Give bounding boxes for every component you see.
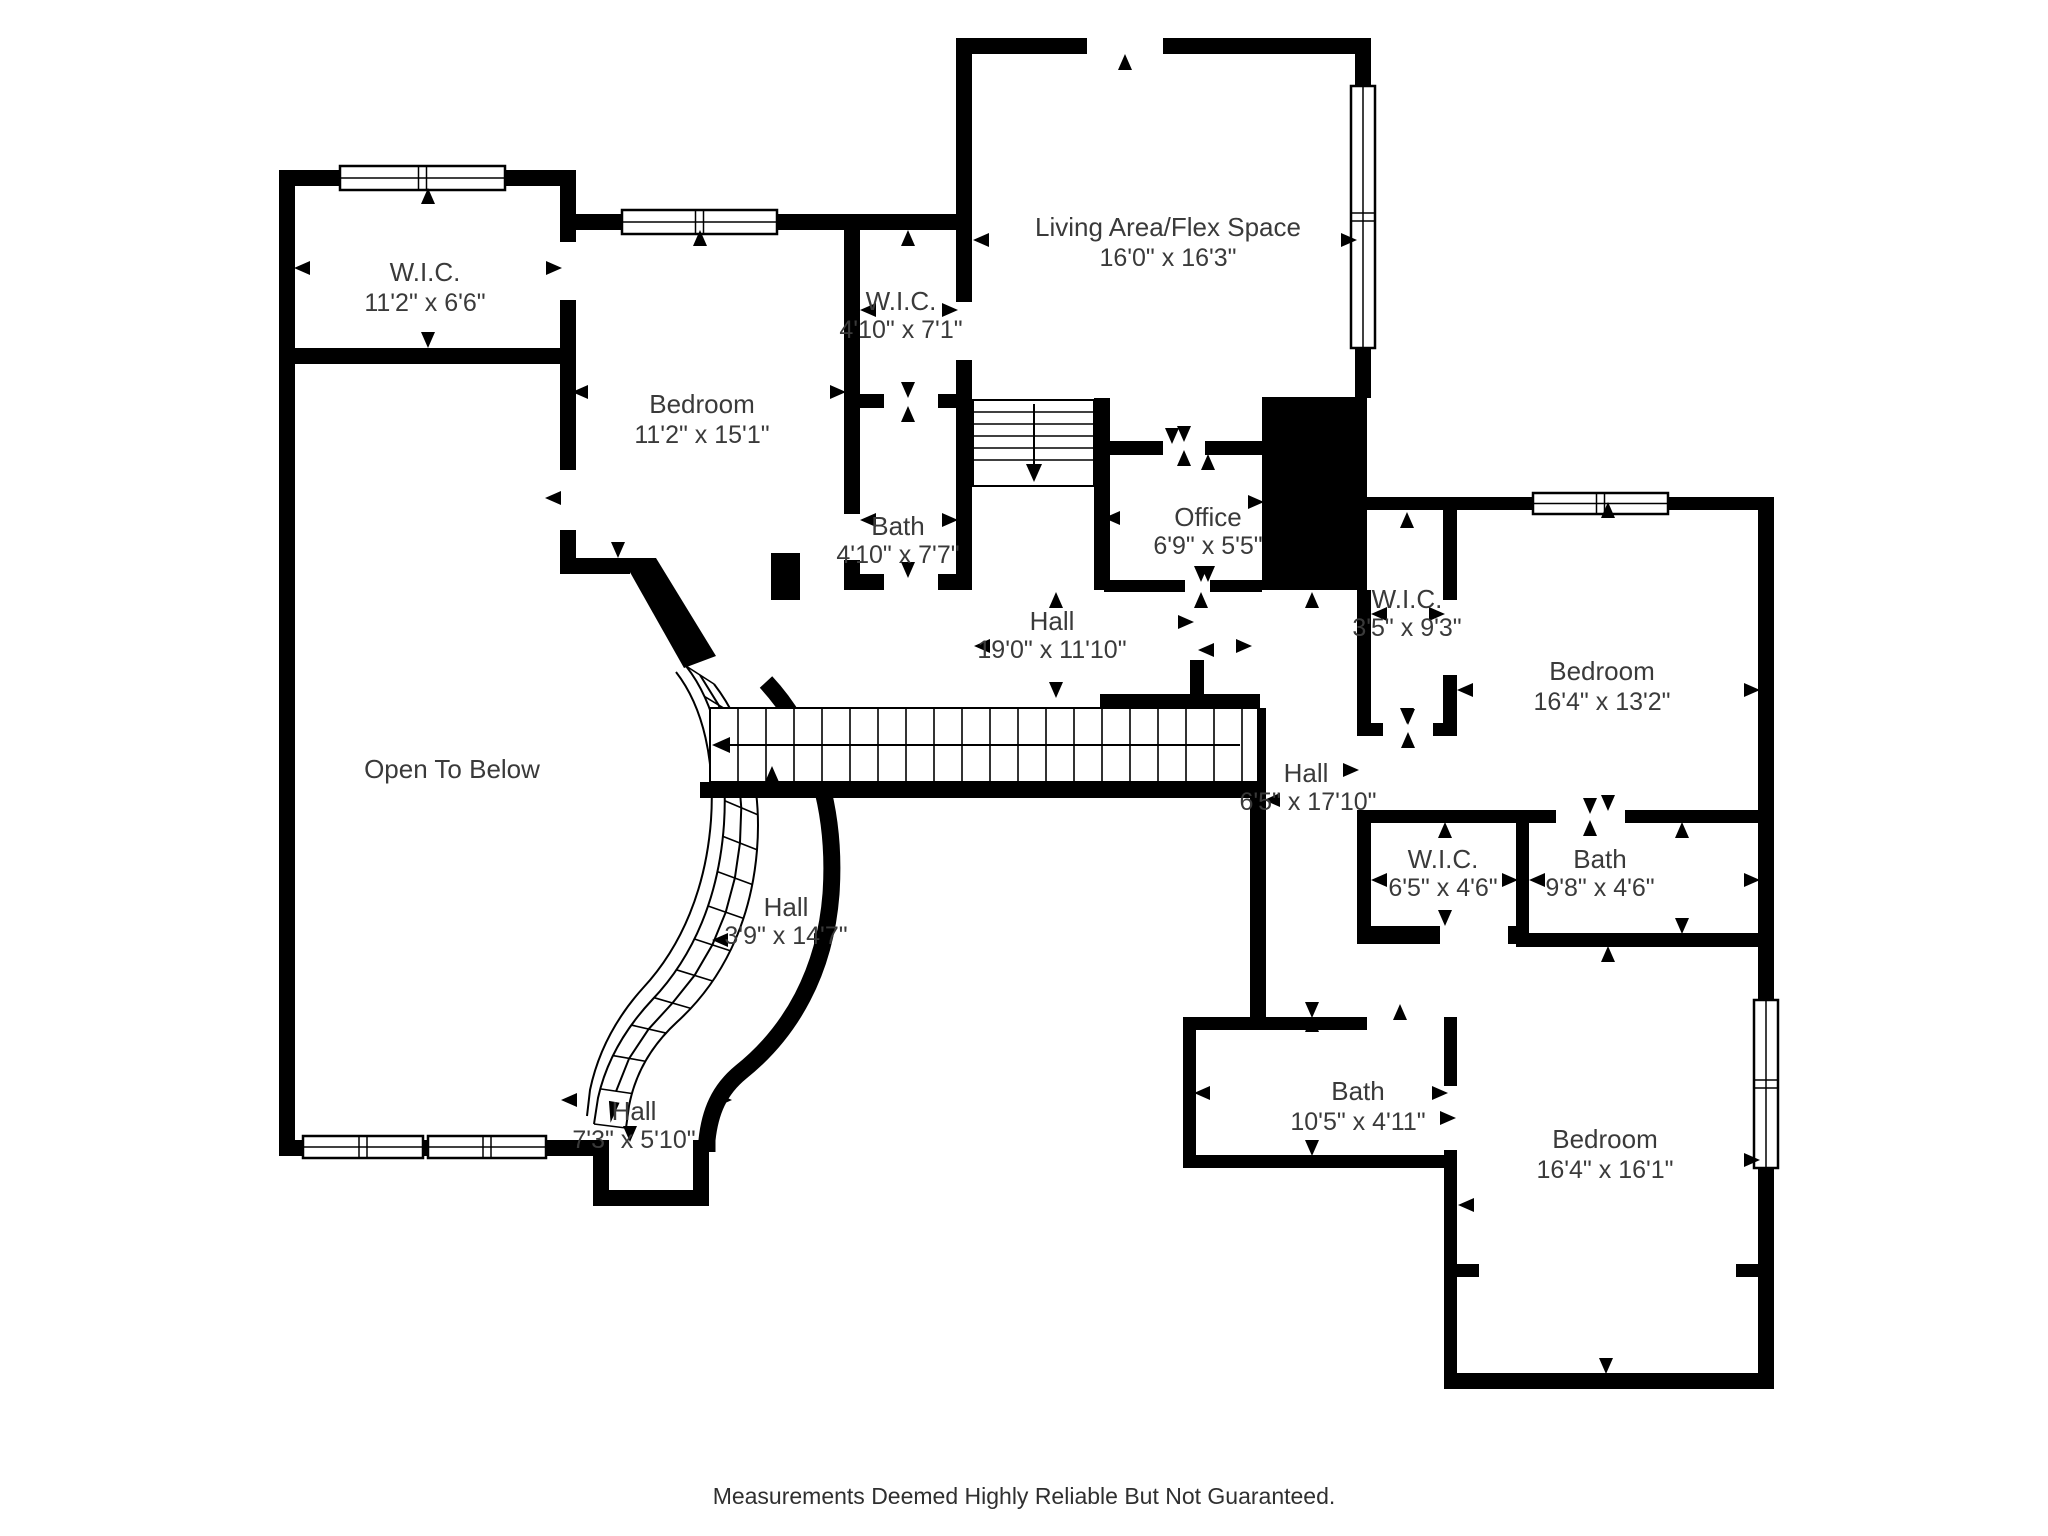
room-label-hall-curved: Hall [764,892,809,922]
wall-segment [1516,933,1774,947]
floor-plan-page: W.I.C. 11'2" x 6'6" Bedroom 11'2" x 15'1… [0,0,2048,1536]
wall-segment [560,364,576,470]
dimension-arrow [561,1093,577,1107]
dimension-arrow [546,261,562,275]
window [1754,1000,1778,1168]
dimension-arrow [1177,426,1191,442]
room-label-wic-small: W.I.C. [1408,844,1479,874]
wall-segment [771,553,800,600]
wall-segment [1205,441,1262,455]
room-dims-wic-top-left: 11'2" x 6'6" [364,289,485,317]
wall-segment [957,38,1087,54]
wall-segment [279,170,295,364]
wall-segment [1104,441,1163,455]
room-label-bedroom-bottom: Bedroom [1552,1124,1658,1154]
room-dims-hall-main: 19'0" x 11'10" [977,636,1126,664]
wall-segment [1433,723,1457,736]
dimension-arrow [1177,450,1191,466]
wall-segment [1758,823,1774,947]
dimension-arrow [1502,873,1518,887]
room-dims-living-area: 16'0" x 16'3" [1099,244,1236,272]
dimension-arrow [611,542,625,558]
dimension-arrow [973,233,989,247]
dimension-arrow [1440,1111,1456,1125]
wall-segment [1444,1150,1457,1386]
dimension-arrow [1194,1086,1210,1100]
wall-segment [1183,1017,1196,1168]
dimension-arrow [1305,592,1319,608]
dimension-arrow [1049,682,1063,698]
wall-segment [1183,1017,1367,1030]
wall-segment [1210,580,1262,592]
dimension-arrow [1165,428,1179,444]
dimension-arrow [1305,1140,1319,1156]
dimension-arrow [1178,615,1194,629]
room-label-office: Office [1174,502,1241,532]
wall-segment [1508,926,1517,944]
dimension-arrow [1371,873,1387,887]
wall-segment [1758,497,1774,823]
wall-segment [1457,1264,1479,1277]
wall-segment-diagonal [622,558,716,668]
dimension-arrow [1744,683,1760,697]
dimension-arrow [1583,820,1597,836]
room-dims-wic-top-mid: 4'10" x 7'1" [839,316,962,344]
dimension-arrow [545,491,561,505]
wall-segment [1443,497,1457,600]
room-dims-wic-small: 6'5" x 4'6" [1388,874,1497,902]
wall-segment [1357,590,1371,735]
room-label-bedroom-top-left: Bedroom [649,389,755,419]
wall-segment [844,214,860,514]
dimension-arrow [1529,873,1545,887]
wall-segment [1625,810,1774,823]
dimension-arrow [1438,822,1452,838]
wall-segment [956,38,972,302]
wall-segment [844,394,884,408]
wall-segment [1163,38,1369,54]
room-label-wic-right: W.I.C. [1372,584,1443,614]
wall-segment [1444,1373,1774,1389]
wall-segment [700,782,1262,798]
room-label-wic-top-mid: W.I.C. [866,286,937,316]
wall-segment [1443,675,1457,723]
room-label-bath-bottom: Bath [1331,1076,1385,1106]
wall-segment [1357,926,1440,944]
dimension-arrow [901,230,915,246]
wall-segment [1736,1264,1758,1277]
wall-segment [1516,810,1529,944]
dimension-arrow [421,332,435,348]
room-label-wic-top-left: W.I.C. [390,257,461,287]
dimension-arrow [1248,495,1264,509]
room-dims-bath-right: 9'8" x 4'6" [1545,874,1654,902]
room-label-living-area: Living Area/Flex Space [1035,212,1301,242]
wall-segment [593,1190,709,1206]
room-dims-wic-right: 3'5" x 9'3" [1352,614,1461,642]
dimension-arrow [1401,732,1415,748]
wall-segment [279,348,576,364]
wall-segment [844,574,884,590]
dimension-arrow [1457,683,1473,697]
dimension-arrow [1675,822,1689,838]
wall-segment [1104,580,1185,592]
room-dims-bedroom-right: 16'4" x 13'2" [1533,688,1670,716]
dimension-arrow [1744,873,1760,887]
dimension-arrow [294,261,310,275]
wall-segment [1094,398,1110,590]
room-dims-bedroom-bottom: 16'4" x 16'1" [1536,1156,1673,1184]
room-label-hall-bottom: Hall [612,1096,657,1126]
room-label-bath-mid: Bath [871,511,925,541]
window [1533,493,1668,514]
dimension-arrow [1438,910,1452,926]
room-label-hall-right: Hall [1284,758,1329,788]
dimension-arrow [901,382,915,398]
dimension-arrow [1393,1004,1407,1020]
wall-segment [1357,810,1371,943]
room-label-open-to-below: Open To Below [364,754,540,784]
dimension-arrow [1236,639,1252,653]
dimension-arrow [1400,512,1414,528]
room-label-bath-right: Bath [1573,844,1627,874]
room-label-bedroom-right: Bedroom [1549,656,1655,686]
dimension-arrow [942,303,958,317]
dimension-arrow [1118,54,1132,70]
dimension-arrow [1675,918,1689,934]
wall-segment [279,348,295,1156]
staircases [594,400,1258,1128]
dimension-arrow [830,385,846,399]
dimension-arrow [1201,454,1215,470]
window [303,1136,423,1158]
dimension-arrow [1194,592,1208,608]
room-dims-hall-right: 6'5" x 17'10" [1239,788,1376,816]
window [340,166,505,190]
open-to-below-railing [587,672,712,1116]
room-dims-office: 6'9" x 5'5" [1153,532,1262,560]
dimension-arrow [1583,798,1597,814]
room-dims-hall-curved: 3'9" x 14'7" [724,922,847,950]
window [428,1136,546,1158]
dimension-arrow [1305,1002,1319,1018]
window [1351,86,1375,348]
wall-segment [1357,810,1517,823]
wall-segment [1262,397,1367,590]
wall-segment [560,170,576,242]
room-dims-bedroom-top-left: 11'2" x 15'1" [634,421,769,449]
wall-segment [1357,723,1383,736]
dimension-arrow [942,513,958,527]
dimension-arrow [1601,946,1615,962]
dimension-arrow [1198,643,1214,657]
dimension-arrow [1601,795,1615,811]
wall-segment [1100,694,1260,708]
room-dims-hall-bottom: 7'3" x 5'10" [572,1126,695,1154]
room-dims-bath-mid: 4'10" x 7'7" [836,541,959,569]
dimension-arrow [1401,709,1415,725]
dimension-arrow [1343,763,1359,777]
room-dims-bath-bottom: 10'5" x 4'11" [1290,1108,1425,1136]
wall-segment [1444,1017,1457,1086]
dimension-arrow [1432,1086,1448,1100]
dimension-arrow [1599,1358,1613,1374]
footer-disclaimer: Measurements Deemed Highly Reliable But … [713,1483,1336,1509]
room-label-hall-main: Hall [1030,606,1075,636]
wall-segment [560,558,630,574]
window [622,210,777,234]
wall-segment [1183,1155,1457,1168]
dimension-arrow [1458,1198,1474,1212]
dimension-arrow [901,406,915,422]
floor-plan-svg: W.I.C. 11'2" x 6'6" Bedroom 11'2" x 15'1… [0,0,2048,1536]
